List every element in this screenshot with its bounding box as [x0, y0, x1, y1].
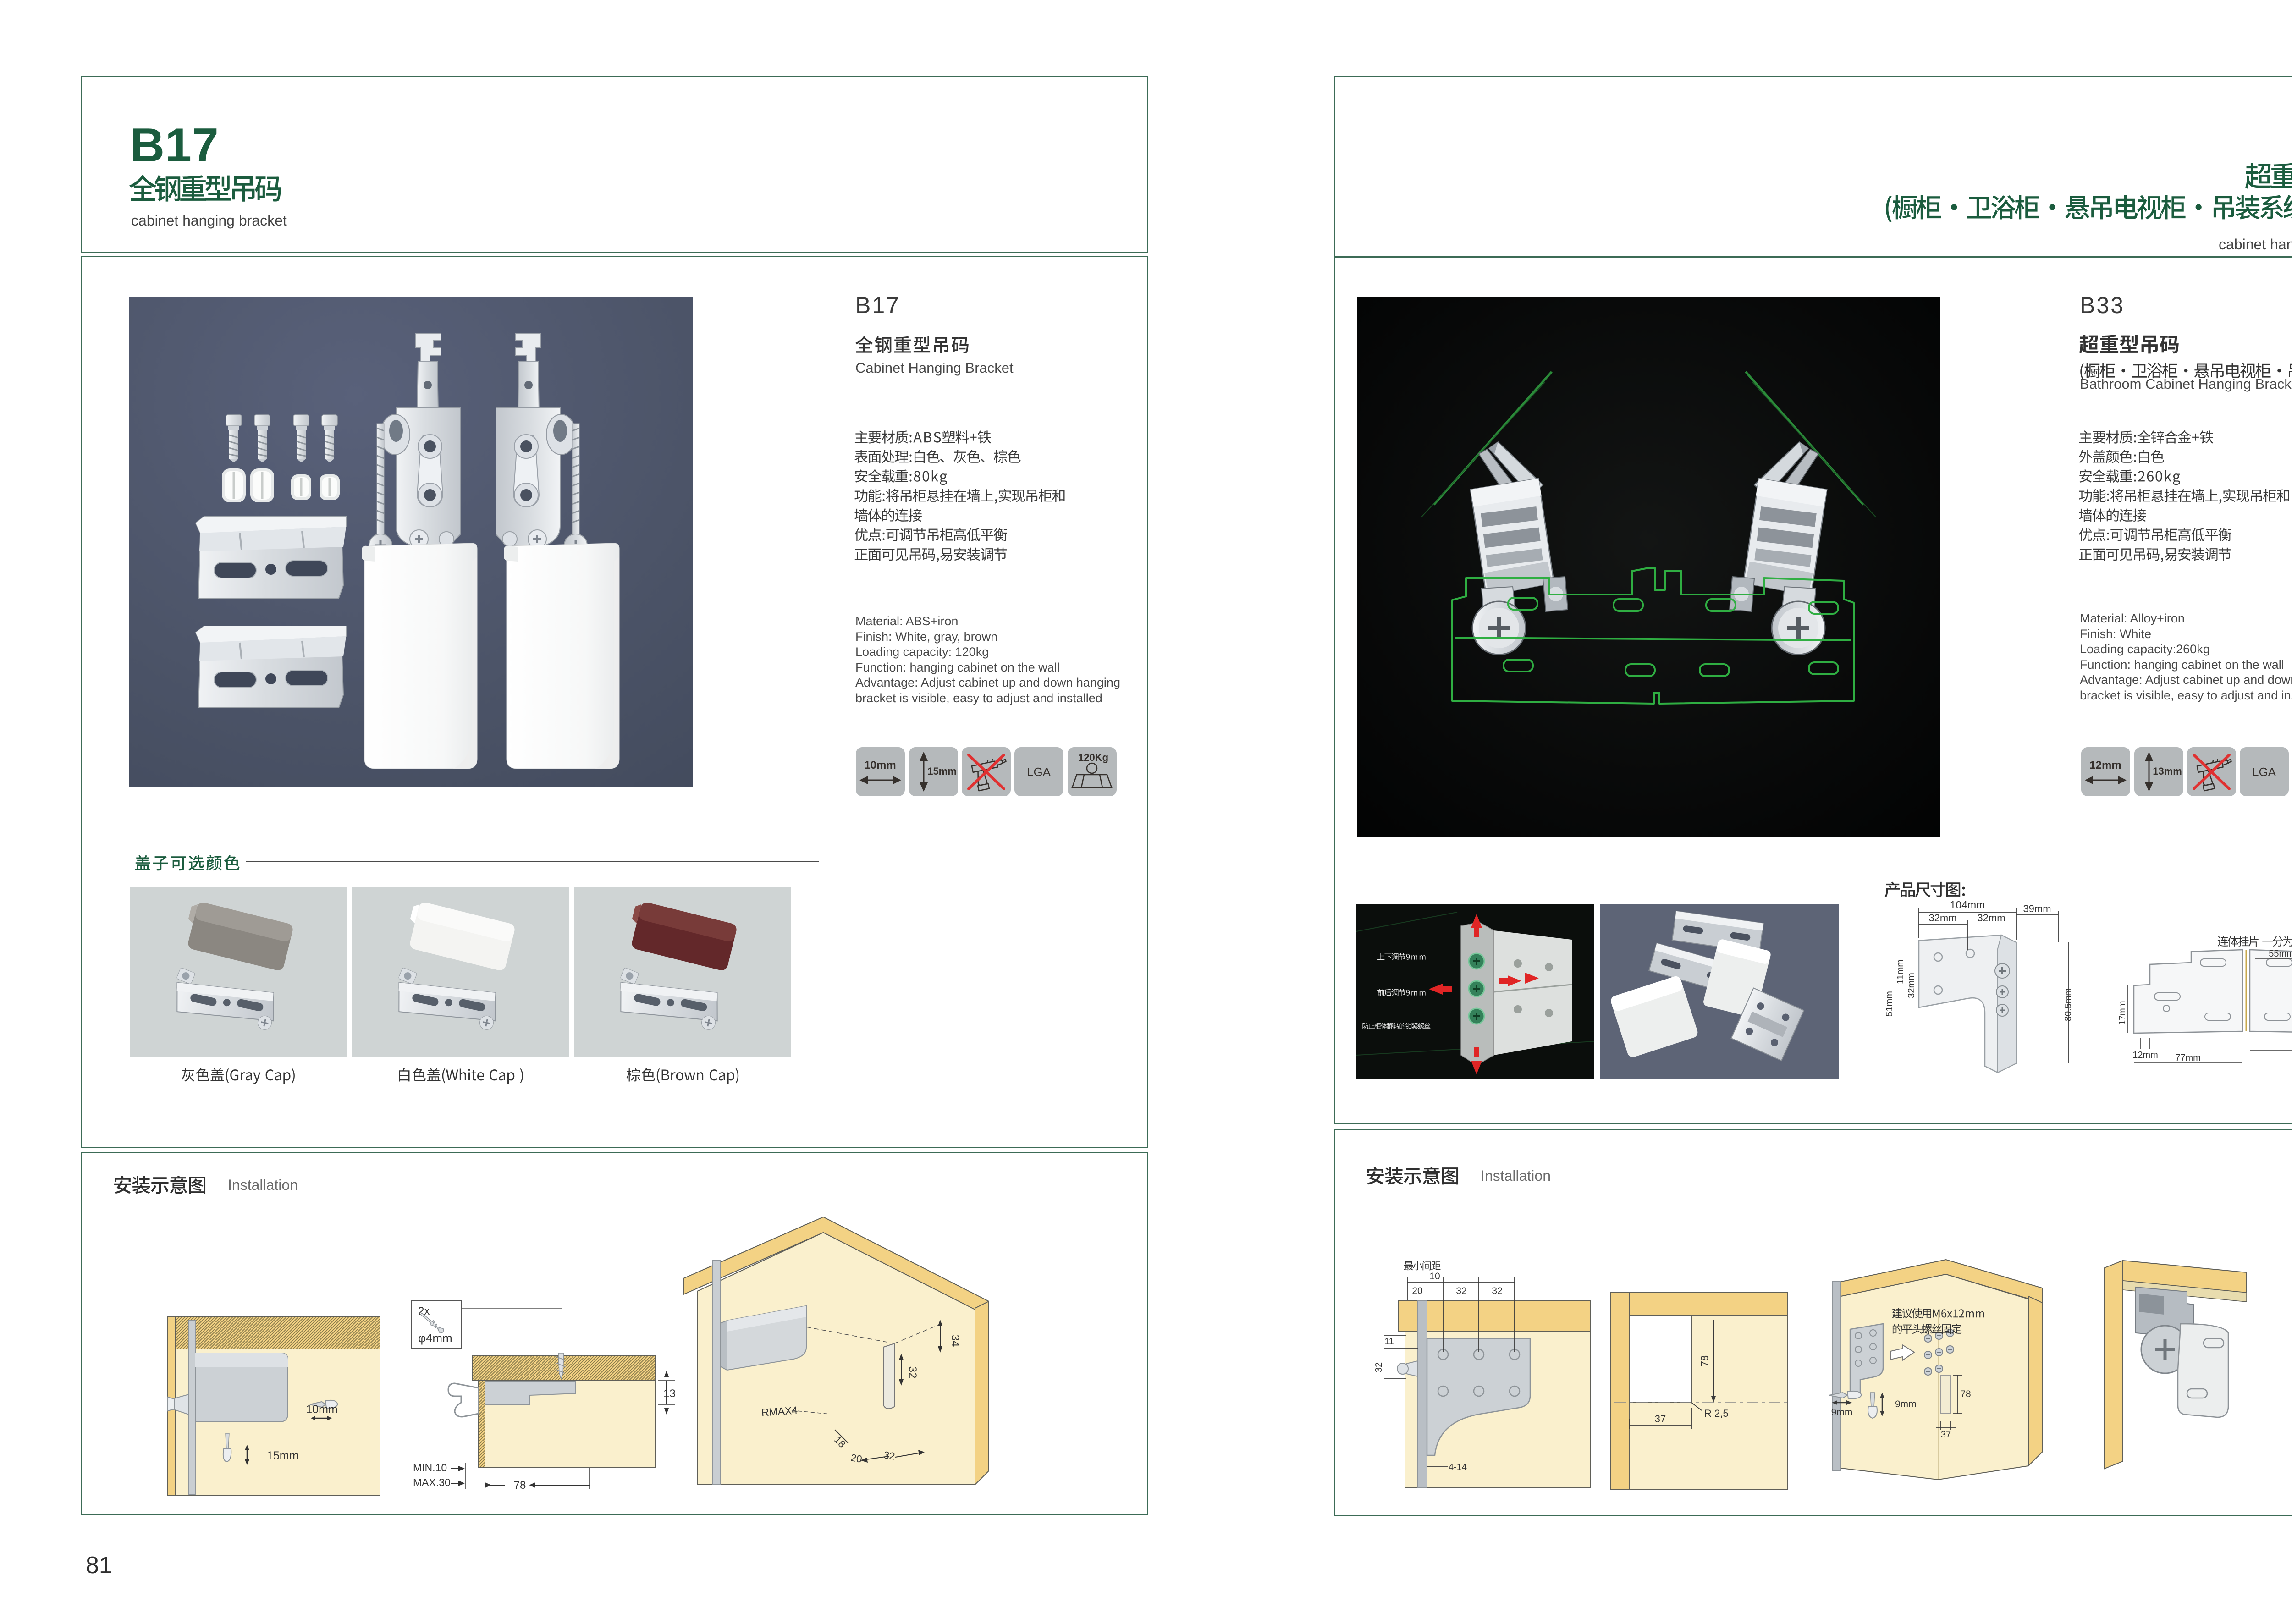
svg-text:12mm: 12mm: [2089, 759, 2121, 771]
svg-text:10mm: 10mm: [864, 759, 896, 771]
svg-text:104mm: 104mm: [1950, 899, 1985, 911]
svg-text:78: 78: [1699, 1355, 1710, 1366]
svg-text:80.5mm: 80.5mm: [2063, 988, 2073, 1021]
svg-text:32mm: 32mm: [1928, 912, 1956, 924]
svg-text:32mm: 32mm: [1977, 912, 2005, 924]
svg-text:34: 34: [949, 1335, 961, 1347]
svg-text:51mm: 51mm: [1884, 991, 1895, 1017]
svg-text:12mm: 12mm: [2132, 1050, 2158, 1060]
svg-text:32: 32: [906, 1366, 919, 1379]
svg-text:MIN.10: MIN.10: [413, 1462, 447, 1474]
svg-text:32mm: 32mm: [1906, 973, 1917, 998]
svg-text:15mm: 15mm: [267, 1449, 298, 1462]
svg-text:13mm: 13mm: [2153, 765, 2182, 777]
svg-text:32: 32: [1456, 1286, 1466, 1296]
svg-text:11mm: 11mm: [1895, 959, 1906, 984]
svg-text:φ4mm: φ4mm: [418, 1331, 452, 1345]
svg-text:LGA: LGA: [1027, 765, 1051, 779]
svg-text:120Kg: 120Kg: [1078, 752, 1108, 763]
svg-text:LGA: LGA: [2252, 765, 2276, 779]
svg-text:32: 32: [1492, 1286, 1502, 1296]
svg-text:13: 13: [663, 1387, 676, 1400]
svg-text:20: 20: [850, 1452, 863, 1465]
svg-text:32: 32: [1374, 1362, 1384, 1372]
svg-text:R 2,5: R 2,5: [1704, 1408, 1729, 1419]
svg-text:37: 37: [1655, 1413, 1666, 1425]
svg-text:15mm: 15mm: [927, 765, 957, 777]
svg-text:RMAX4: RMAX4: [761, 1404, 798, 1418]
svg-text:37: 37: [1941, 1430, 1951, 1440]
svg-text:78: 78: [514, 1479, 526, 1492]
svg-text:4-14: 4-14: [1449, 1462, 1467, 1472]
svg-text:9mm: 9mm: [1895, 1399, 1917, 1409]
svg-text:11: 11: [1384, 1337, 1394, 1347]
svg-text:32: 32: [883, 1449, 896, 1462]
svg-text:MAX.30: MAX.30: [413, 1476, 451, 1488]
svg-text:9mm: 9mm: [1831, 1407, 1853, 1418]
svg-text:17mm: 17mm: [2118, 1001, 2127, 1025]
svg-text:10mm: 10mm: [306, 1403, 337, 1416]
svg-text:55mm: 55mm: [2269, 949, 2292, 959]
svg-text:20: 20: [1412, 1286, 1422, 1296]
svg-text:78: 78: [1960, 1389, 1971, 1399]
svg-text:77mm: 77mm: [2175, 1053, 2201, 1063]
svg-text:39mm: 39mm: [2023, 903, 2051, 914]
